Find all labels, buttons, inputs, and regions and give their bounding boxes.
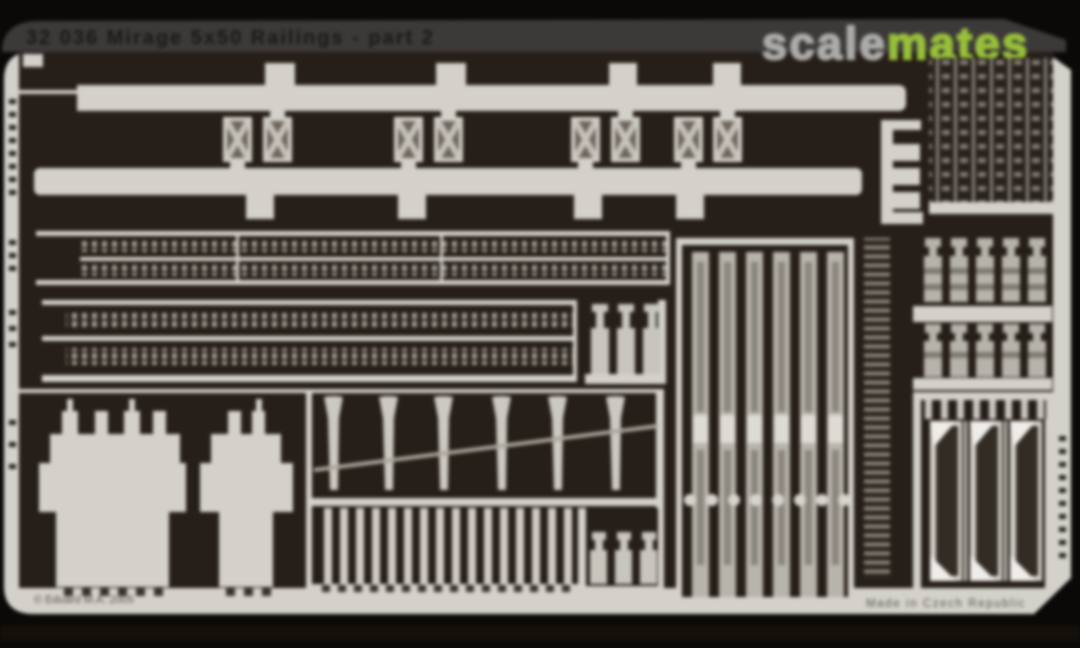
svg-text:© Eduard M.A. 2005: © Eduard M.A. 2005 xyxy=(34,594,134,606)
svg-text:Made in Czech Republic: Made in Czech Republic xyxy=(866,598,1026,610)
svg-text:32 036 Mirage 5x50 Railings -: 32 036 Mirage 5x50 Railings - part 2 xyxy=(26,27,435,49)
